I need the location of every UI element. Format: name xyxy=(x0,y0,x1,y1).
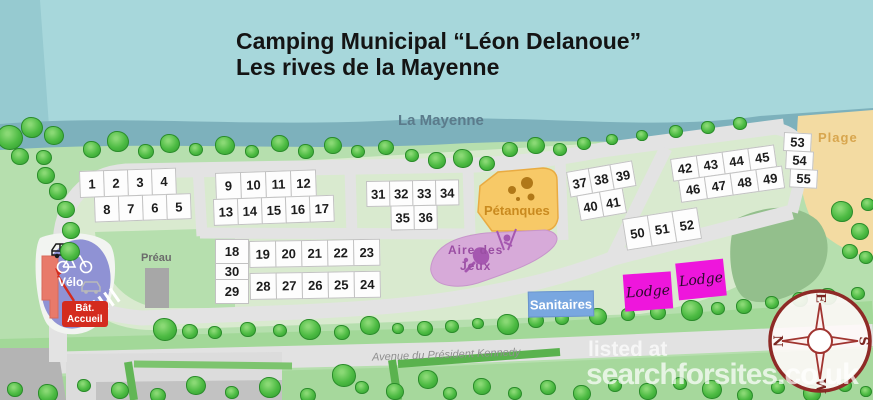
pitch-29: 29 xyxy=(215,279,249,304)
preau-label: Préau xyxy=(141,252,172,264)
tree-icon xyxy=(842,244,858,259)
pitch-52: 52 xyxy=(671,207,702,243)
pitch-32: 32 xyxy=(389,180,413,206)
tree-icon xyxy=(681,300,703,321)
tree-icon xyxy=(711,302,725,315)
tree-icon xyxy=(355,381,369,394)
preau-building xyxy=(145,268,169,308)
tree-icon xyxy=(324,137,342,154)
pitch-block-d: 313233343536 xyxy=(366,179,459,230)
pitch-12: 12 xyxy=(290,169,317,197)
tree-icon xyxy=(186,376,206,395)
tree-icon xyxy=(36,150,52,165)
pitch-35: 35 xyxy=(390,205,414,230)
pitch-1: 1 xyxy=(79,170,105,198)
tree-icon xyxy=(502,142,518,157)
tree-icon xyxy=(861,198,873,211)
compass-top-letter: E xyxy=(813,293,828,303)
pitch-2: 2 xyxy=(103,169,129,197)
pitch-26: 26 xyxy=(302,272,329,299)
tree-icon xyxy=(378,140,394,155)
tree-icon xyxy=(497,314,519,335)
map-title-line1: Camping Municipal “Léon Delanoue” xyxy=(236,28,641,54)
plage-label: Plage xyxy=(818,130,858,145)
tree-icon xyxy=(298,144,314,159)
tree-icon xyxy=(182,324,198,339)
lodge-2: Lodge xyxy=(675,259,727,301)
pitch-11: 11 xyxy=(265,170,292,198)
tree-icon xyxy=(60,242,80,261)
pitch-34: 34 xyxy=(435,179,459,205)
pitch-33: 33 xyxy=(412,180,436,206)
tree-icon xyxy=(57,201,75,218)
pitch-14: 14 xyxy=(237,197,263,225)
tree-icon xyxy=(443,387,457,400)
tree-icon xyxy=(553,143,567,156)
velo-label: Vélo xyxy=(58,275,83,289)
pitch-4: 4 xyxy=(151,168,177,196)
tree-icon xyxy=(259,377,281,398)
road-middle xyxy=(200,233,470,234)
aire-label-line1: Aire des xyxy=(448,242,503,258)
pitch-10: 10 xyxy=(240,171,267,199)
tree-icon xyxy=(577,137,591,150)
tree-icon xyxy=(37,167,55,184)
tree-icon xyxy=(733,117,747,130)
pitch-23: 23 xyxy=(353,239,380,266)
pitch-20: 20 xyxy=(275,240,302,267)
pitch-17: 17 xyxy=(309,195,335,223)
tree-icon xyxy=(107,131,129,152)
tree-icon xyxy=(138,144,154,159)
hedge-horizontal xyxy=(134,364,292,366)
compass-left-letter: N xyxy=(770,335,785,347)
tree-icon xyxy=(508,387,522,400)
pitch-block-c-left: 183029 xyxy=(215,239,248,303)
pitch-block-c: 19202122232827262524 xyxy=(249,239,380,299)
pitch-55: 55 xyxy=(789,168,818,188)
pitch-27: 27 xyxy=(276,272,303,299)
accueil-label-line2: Accueil xyxy=(67,314,103,325)
tree-icon xyxy=(334,325,350,340)
tree-icon xyxy=(386,383,404,400)
tree-icon xyxy=(83,141,101,158)
pitch-36: 36 xyxy=(413,205,437,230)
tree-icon xyxy=(445,320,459,333)
pitch-39: 39 xyxy=(609,160,636,190)
pitch-8: 8 xyxy=(94,196,120,223)
sanitaires-label: Sanitaires xyxy=(528,290,594,317)
pitch-9: 9 xyxy=(215,172,242,200)
pitch-24: 24 xyxy=(354,271,381,298)
compass-right-letter: S xyxy=(856,336,871,345)
tree-icon xyxy=(0,125,23,150)
pitch-15: 15 xyxy=(261,196,287,224)
lodge-1: Lodge xyxy=(623,271,673,311)
tree-icon xyxy=(473,378,491,395)
tree-icon xyxy=(150,388,166,400)
tree-icon xyxy=(77,379,91,392)
tree-icon xyxy=(271,135,289,152)
pitch-18: 18 xyxy=(215,239,249,264)
pitch-3: 3 xyxy=(127,168,153,196)
tree-icon xyxy=(62,222,80,239)
pitch-31: 31 xyxy=(366,181,390,207)
aire-des-jeux-label: Aire des Jeux xyxy=(448,242,503,274)
campsite-map: Camping Municipal “Léon Delanoue” Les ri… xyxy=(0,0,873,400)
tree-icon xyxy=(7,382,23,397)
pitch-19: 19 xyxy=(249,241,276,268)
tree-icon xyxy=(11,148,29,165)
tree-icon xyxy=(189,143,203,156)
pitch-6: 6 xyxy=(142,194,168,221)
pitch-21: 21 xyxy=(301,240,328,267)
tree-icon xyxy=(428,152,446,169)
pitch-28: 28 xyxy=(250,273,277,300)
petanques-label: Pétanques xyxy=(484,203,550,218)
map-title-line2: Les rives de la Mayenne xyxy=(236,54,641,80)
accueil-label: Bât. Accueil xyxy=(62,301,108,327)
tree-icon xyxy=(736,299,752,314)
tree-icon xyxy=(701,121,715,134)
tree-icon xyxy=(418,370,438,389)
pitch-16: 16 xyxy=(285,196,311,224)
map-title: Camping Municipal “Léon Delanoue” Les ri… xyxy=(236,28,641,80)
tree-icon xyxy=(540,380,556,395)
tree-icon xyxy=(215,136,235,155)
pitch-block-h: 535455 xyxy=(781,132,819,188)
pitch-5: 5 xyxy=(166,193,192,220)
tree-icon xyxy=(240,322,256,337)
pitch-13: 13 xyxy=(213,198,239,226)
tree-icon xyxy=(360,316,380,335)
tree-icon xyxy=(208,326,222,339)
tree-icon xyxy=(453,149,473,168)
pitch-22: 22 xyxy=(327,239,354,266)
tree-icon xyxy=(111,382,129,399)
tree-icon xyxy=(44,126,64,145)
pitch-block-a: 12348765 xyxy=(79,167,191,222)
pitch-25: 25 xyxy=(328,271,355,298)
tree-icon xyxy=(38,384,58,400)
aire-label-line2: Jeux xyxy=(448,258,503,274)
tree-icon xyxy=(160,134,180,153)
tree-icon xyxy=(299,319,321,340)
tree-icon xyxy=(49,183,67,200)
river-label: La Mayenne xyxy=(398,112,484,129)
tree-icon xyxy=(405,149,419,162)
watermark-site-url: searchforsites.co.uk xyxy=(586,358,858,392)
accueil-label-line1: Bât. xyxy=(67,303,103,314)
tree-icon xyxy=(851,223,869,240)
tree-icon xyxy=(225,386,239,399)
tree-icon xyxy=(300,388,316,400)
tree-icon xyxy=(21,117,43,138)
tree-icon xyxy=(153,318,177,341)
tree-icon xyxy=(859,251,873,264)
tree-icon xyxy=(831,201,853,222)
tree-icon xyxy=(669,125,683,138)
pitch-30: 30 xyxy=(215,263,249,280)
pitch-41: 41 xyxy=(599,187,627,217)
tree-icon xyxy=(273,324,287,337)
tree-icon xyxy=(417,321,433,336)
tree-icon xyxy=(527,137,545,154)
tree-icon xyxy=(479,156,495,171)
pitch-block-b: 91011121314151617 xyxy=(212,169,334,225)
pitch-7: 7 xyxy=(118,195,144,222)
tree-icon xyxy=(351,145,365,158)
tree-icon xyxy=(332,364,356,387)
tree-icon xyxy=(245,145,259,158)
